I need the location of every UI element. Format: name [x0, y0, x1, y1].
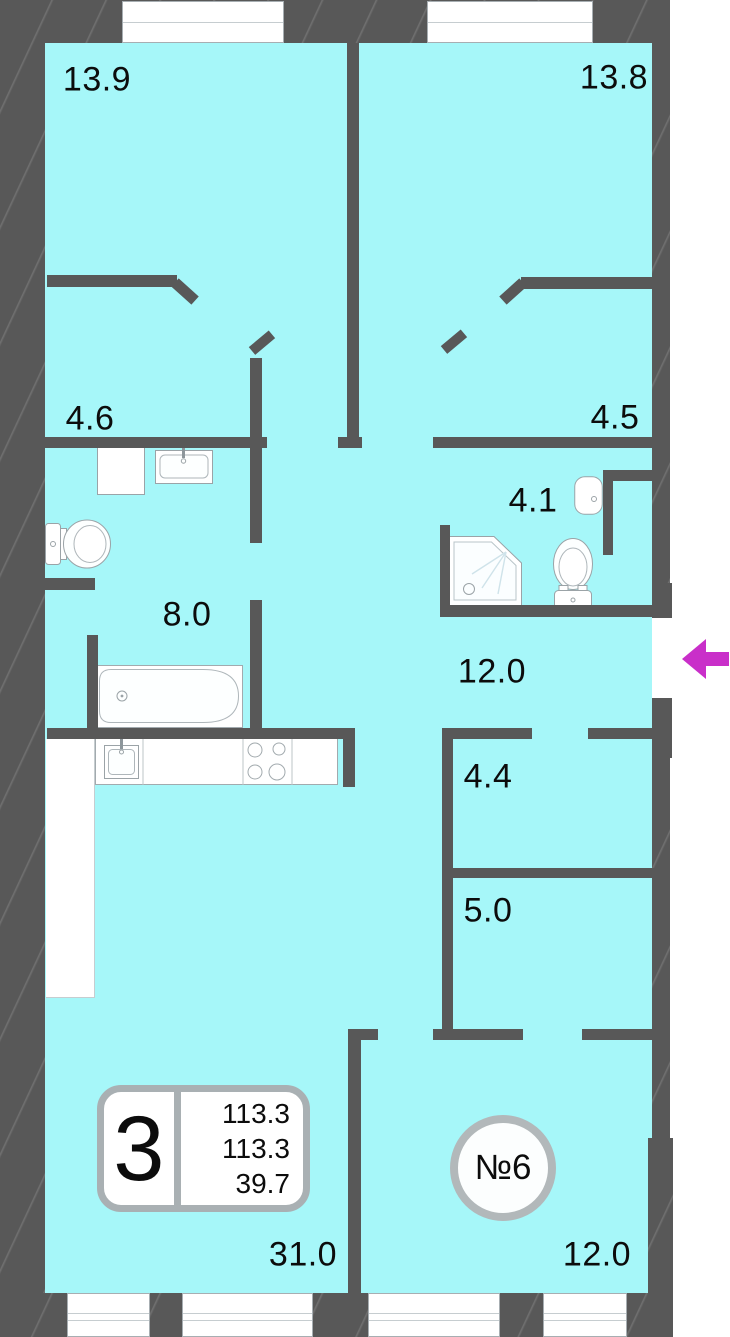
wall-bedroom-divider-cap: [338, 437, 362, 448]
area-kitchen: 39.7: [181, 1166, 290, 1201]
room-area-label: 4.1: [509, 482, 558, 521]
area-living: 113.3: [181, 1131, 290, 1166]
room-area-label: 13.8: [580, 59, 648, 98]
window-top-right: [427, 1, 593, 43]
room-area-label: 12.0: [458, 653, 526, 692]
room-area-label: 4.5: [591, 399, 640, 438]
room-area-label: 12.0: [563, 1236, 631, 1275]
wall-hall-top-right: [433, 437, 653, 448]
wall-bedroom-divider: [347, 43, 359, 437]
window-bottom-3: [368, 1293, 500, 1337]
wall-wc-horizontal: [607, 470, 653, 481]
kitchen-counter-left-strip: [46, 739, 95, 998]
wall-storage-bottom-a: [433, 1029, 523, 1040]
bathtub-icon: [95, 665, 243, 728]
apartment-info-badge: 3 113.3 113.3 39.7: [97, 1085, 310, 1212]
window-bottom-1: [67, 1293, 150, 1337]
wall-hall-44-b: [588, 728, 653, 739]
window-top-left: [122, 1, 284, 43]
area-figures: 113.3 113.3 39.7: [181, 1092, 303, 1205]
shower-tray-icon: [448, 536, 522, 606]
wall-bedroom2-lower: [521, 277, 652, 289]
wall-bath-right-bottom: [440, 605, 657, 617]
entry-pier-bottom: [652, 698, 672, 758]
wall-storage-middle: [442, 868, 658, 878]
wall-outer-right-top: [652, 43, 670, 583]
room-area-label: 31.0: [269, 1236, 337, 1275]
wall-wc-vertical: [603, 470, 613, 555]
wall-hall-top-left: [45, 437, 267, 448]
entrance-arrow-icon: [680, 637, 730, 681]
wall-bath-left-stub: [45, 578, 95, 590]
room-count: 3: [104, 1092, 181, 1205]
unit-number-circle: №6: [450, 1115, 556, 1221]
bathroom-sink-icon: [155, 446, 213, 484]
room-area-label: 4.4: [464, 758, 513, 797]
kitchen-counter: [95, 738, 338, 785]
washing-machine-icon: [97, 446, 145, 495]
wall-pier-bottom-right: [648, 1138, 673, 1293]
wall-hall-44-a: [442, 728, 532, 739]
room-area-label: 8.0: [163, 596, 212, 635]
wall-bedroom1-lower: [47, 275, 177, 287]
unit-number: №6: [474, 1148, 531, 1188]
wall-storage-vertical: [442, 739, 453, 1029]
room-area-label: 13.9: [63, 61, 131, 100]
area-total: 113.3: [181, 1096, 290, 1131]
toilet-left-icon: [44, 518, 112, 570]
wall-tub-right: [250, 600, 262, 728]
room-area-label: 5.0: [464, 892, 513, 931]
room-area-label: 4.6: [66, 400, 115, 439]
window-bottom-4: [543, 1293, 627, 1337]
wall-shower-left: [440, 525, 450, 615]
wall-tub-left: [87, 635, 98, 728]
wall-outer-left: [0, 0, 45, 1337]
wall-storage-bottom-b: [582, 1029, 657, 1040]
wall-kitchen-right: [343, 728, 355, 787]
toilet-right-icon: [551, 538, 595, 610]
wc-sink-icon: [574, 476, 603, 515]
wall-bath-left-side: [250, 358, 262, 543]
wall-kitchen-main: [47, 728, 355, 739]
wall-living-thin: [348, 1029, 361, 1293]
window-bottom-2: [182, 1293, 313, 1337]
floor-plan: 13.9 13.8 4.6 4.5 4.1 8.0 12.0 4.4 5.0 3…: [0, 0, 730, 1337]
